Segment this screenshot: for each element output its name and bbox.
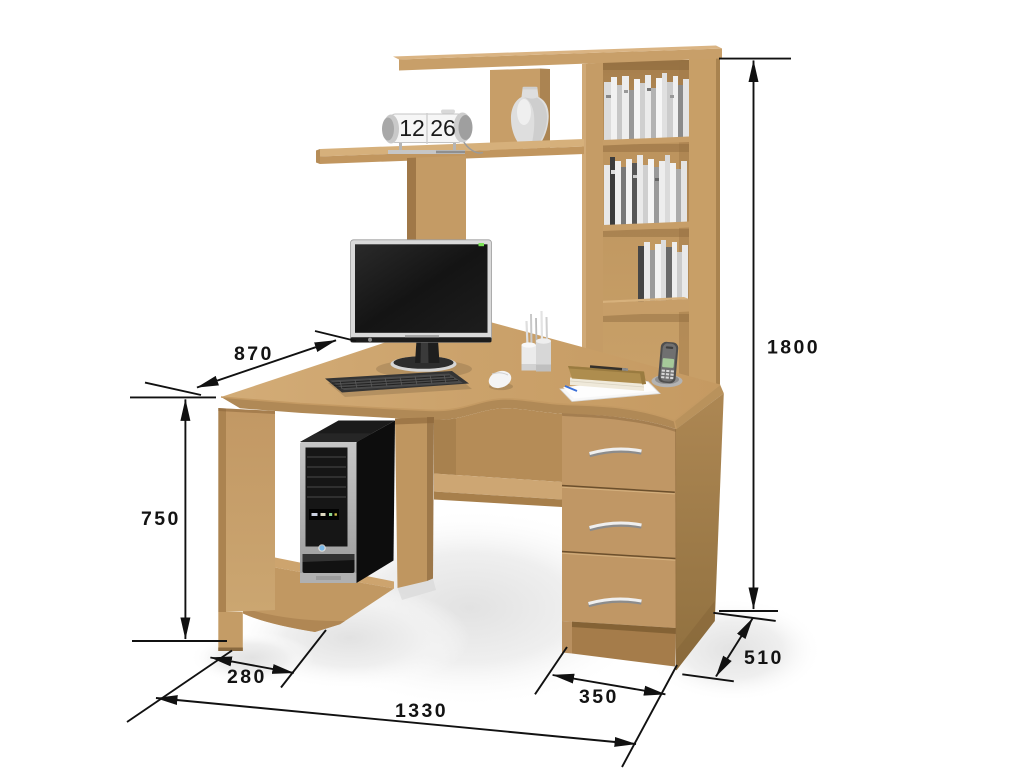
svg-text:510: 510 [744,647,784,669]
svg-text:12: 12 [399,115,425,141]
svg-text:1800: 1800 [767,337,820,359]
svg-text:750: 750 [141,508,181,530]
svg-text:350: 350 [579,686,619,708]
svg-text:26: 26 [430,115,456,141]
svg-text:280: 280 [227,666,267,688]
svg-text:1330: 1330 [395,700,448,722]
svg-text:870: 870 [234,343,274,365]
